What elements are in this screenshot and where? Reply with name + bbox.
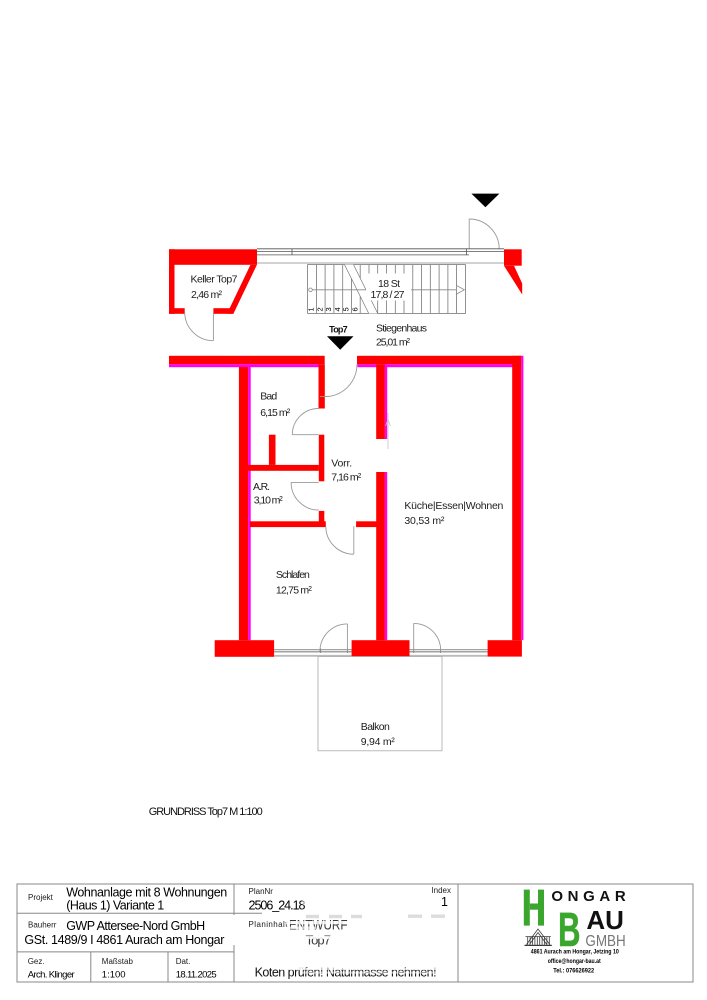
svg-text:Dat.: Dat. — [176, 957, 191, 966]
svg-text:25,01 m²: 25,01 m² — [376, 337, 411, 349]
svg-text:Stiegenhaus: Stiegenhaus — [376, 322, 427, 334]
svg-text:Top7: Top7 — [306, 933, 332, 948]
svg-text:4861 Aurach am Hongar, Jetzing: 4861 Aurach am Hongar, Jetzing 10 — [531, 949, 619, 956]
svg-text:Bauherr: Bauherr — [28, 921, 57, 930]
svg-text:12,75 m²: 12,75 m² — [276, 584, 313, 596]
svg-text:Schlafen: Schlafen — [276, 569, 310, 581]
svg-text:9,94 m²: 9,94 m² — [361, 736, 396, 748]
svg-text:6,15 m²: 6,15 m² — [260, 407, 291, 419]
svg-text:17,8 / 27: 17,8 / 27 — [371, 289, 405, 301]
svg-text:Maßstab: Maßstab — [102, 957, 134, 966]
svg-text:3,10 m²: 3,10 m² — [254, 495, 283, 507]
svg-text:1: 1 — [307, 307, 316, 311]
svg-text:Küche|Essen|Wohnen: Küche|Essen|Wohnen — [404, 500, 503, 512]
svg-text:Index: Index — [431, 886, 451, 895]
svg-text:Arch. Klinger: Arch. Klinger — [28, 970, 75, 981]
svg-text:6: 6 — [350, 307, 359, 311]
svg-text:1: 1 — [441, 895, 448, 909]
svg-text:4: 4 — [333, 307, 342, 311]
svg-text:7,16 m²: 7,16 m² — [331, 472, 362, 484]
svg-text:office@hongar-bau.at: office@hongar-bau.at — [548, 958, 601, 965]
svg-text:GRUNDRISS Top7 M 1:100: GRUNDRISS Top7 M 1:100 — [149, 806, 263, 818]
svg-text:5: 5 — [342, 307, 351, 311]
svg-text:Gez.: Gez. — [28, 957, 45, 966]
svg-text:2: 2 — [315, 307, 324, 311]
svg-text:Balkon: Balkon — [361, 721, 390, 733]
svg-text:ONGAR: ONGAR — [551, 888, 625, 905]
svg-text:Wohnanlage mit 8 Wohnungen: Wohnanlage mit 8 Wohnungen — [66, 886, 227, 900]
svg-text:Tel.: 076626922: Tel.: 076626922 — [553, 968, 595, 975]
svg-text:30,53 m²: 30,53 m² — [404, 515, 445, 527]
svg-text:ENTWURF: ENTWURF — [289, 917, 348, 933]
svg-text:GSt. 1489/9 I 4861 Aurach am H: GSt. 1489/9 I 4861 Aurach am Hongar — [24, 933, 224, 947]
svg-text:Projekt: Projekt — [28, 893, 54, 902]
svg-text:GMBH: GMBH — [585, 933, 625, 950]
svg-text:GWP Attersee-Nord GmbH: GWP Attersee-Nord GmbH — [66, 919, 205, 933]
svg-text:18.11.2025: 18.11.2025 — [176, 970, 217, 981]
svg-text:Keller Top7: Keller Top7 — [191, 274, 238, 286]
svg-text:2506_24.18: 2506_24.18 — [249, 899, 306, 913]
svg-text:1:100: 1:100 — [102, 970, 126, 981]
svg-text:PlanNr: PlanNr — [249, 887, 274, 896]
svg-text:Planinhalt: Planinhalt — [249, 920, 289, 929]
svg-text:Vorr.: Vorr. — [331, 457, 352, 469]
svg-text:2,46 m²: 2,46 m² — [191, 289, 223, 301]
svg-text:Top7: Top7 — [329, 325, 348, 335]
svg-text:Bad: Bad — [260, 391, 277, 403]
svg-text:3: 3 — [324, 307, 333, 311]
svg-text:A.R.: A.R. — [253, 481, 270, 493]
svg-text:AU: AU — [586, 905, 624, 935]
svg-text:(Haus 1) Variante 1: (Haus 1) Variante 1 — [66, 899, 164, 913]
